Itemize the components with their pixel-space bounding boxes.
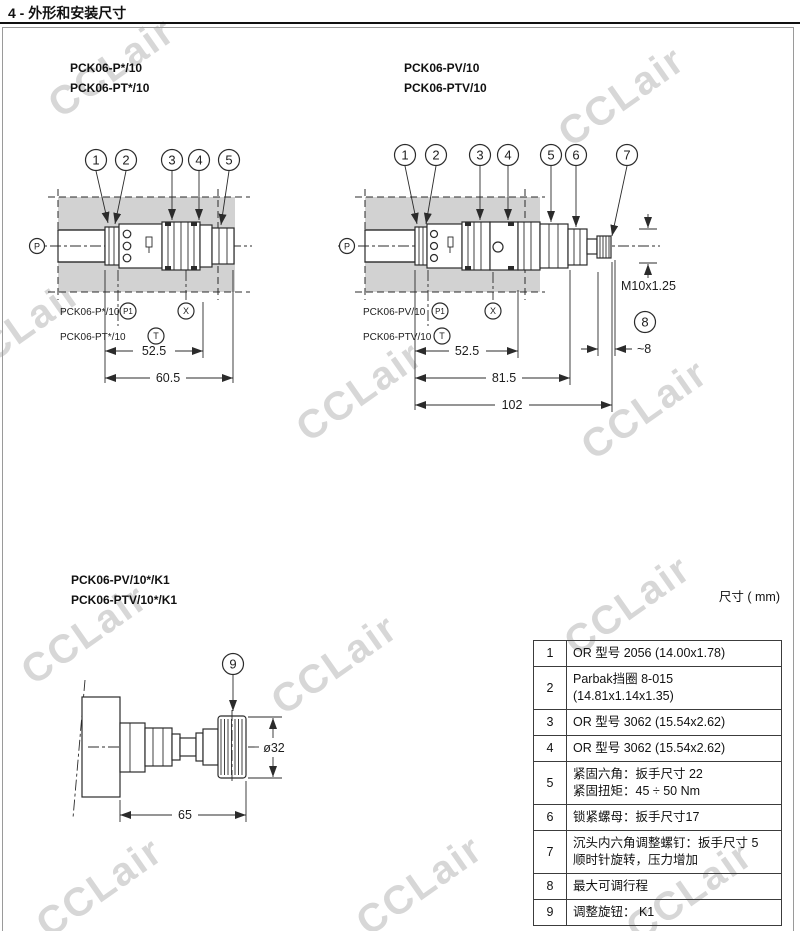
item-number: 1 bbox=[534, 641, 567, 667]
port-p-label: P bbox=[344, 242, 350, 252]
callout-2: 2 bbox=[432, 148, 439, 163]
callout-5: 5 bbox=[225, 153, 232, 168]
table-row: 4OR 型号 3062 (15.54x2.62) bbox=[534, 736, 782, 762]
callout-6: 6 bbox=[572, 148, 579, 163]
item-number: 4 bbox=[534, 736, 567, 762]
dim-52-5: 52.5 bbox=[455, 344, 479, 358]
port-x-label: X bbox=[183, 306, 189, 316]
item-description: OR 型号 3062 (15.54x2.62) bbox=[567, 736, 782, 762]
callout-9-group: 9 bbox=[223, 654, 244, 712]
variant-p-label: PCK06-P*/10 bbox=[60, 307, 120, 318]
lock-nut bbox=[568, 229, 587, 265]
port-p-label: P bbox=[34, 242, 40, 252]
item-number: 2 bbox=[534, 667, 567, 710]
dim-81-5: 81.5 bbox=[492, 371, 516, 385]
item-description: 锁紧螺母：扳手尺寸17 bbox=[567, 805, 782, 831]
cartridge-valve bbox=[415, 222, 611, 270]
dimension-dia32: ø32 bbox=[248, 717, 285, 778]
drawing-pck06-k1: 9 ø32 65 bbox=[73, 654, 285, 823]
drawing-pck06-pv: P bbox=[338, 145, 676, 413]
hex-nut bbox=[212, 228, 234, 264]
port-t-label: T bbox=[153, 331, 159, 341]
item-number: 9 bbox=[534, 900, 567, 926]
dim-60-5: 60.5 bbox=[156, 371, 180, 385]
item-description: OR 型号 2056 (14.00x1.78) bbox=[567, 641, 782, 667]
callout-8-group: 8 bbox=[635, 312, 656, 333]
callout-3: 3 bbox=[168, 153, 175, 168]
dim-dia32: ø32 bbox=[263, 741, 285, 755]
item-description: 紧固六角：扳手尺寸 22紧固扭矩：45 ÷ 50 Nm bbox=[567, 762, 782, 805]
callout-1: 1 bbox=[401, 148, 408, 163]
parts-table-body: 1OR 型号 2056 (14.00x1.78)2Parbak挡圈 8-015 … bbox=[534, 641, 782, 926]
callout-8: 8 bbox=[641, 315, 648, 330]
dim-65: 65 bbox=[178, 808, 192, 822]
callout-2: 2 bbox=[122, 153, 129, 168]
table-row: 5紧固六角：扳手尺寸 22紧固扭矩：45 ÷ 50 Nm bbox=[534, 762, 782, 805]
cartridge-valve bbox=[105, 222, 234, 270]
dimension-stroke: ~8 bbox=[581, 260, 651, 356]
dim-102: 102 bbox=[502, 398, 523, 412]
callout-4: 4 bbox=[195, 153, 202, 168]
table-row: 1OR 型号 2056 (14.00x1.78) bbox=[534, 641, 782, 667]
valve-with-knob bbox=[120, 710, 246, 784]
table-row: 3OR 型号 3062 (15.54x2.62) bbox=[534, 710, 782, 736]
callout-5: 5 bbox=[547, 148, 554, 163]
callout-1: 1 bbox=[92, 153, 99, 168]
section-header: 4 - 外形和安装尺寸 bbox=[0, 0, 800, 24]
table-row: 6锁紧螺母：扳手尺寸17 bbox=[534, 805, 782, 831]
thread-callout: M10x1.25 bbox=[621, 214, 676, 293]
variant-pv-label: PCK06-PV/10 bbox=[363, 307, 426, 318]
drawing-pck06-p: P bbox=[30, 150, 253, 386]
callout-7: 7 bbox=[623, 148, 630, 163]
datasheet-page: CCLair CCLair CCLair CCLair CCLair CCLai… bbox=[0, 0, 800, 931]
item-number: 7 bbox=[534, 831, 567, 874]
item-description: OR 型号 3062 (15.54x2.62) bbox=[567, 710, 782, 736]
item-number: 5 bbox=[534, 762, 567, 805]
thread-label: M10x1.25 bbox=[621, 279, 676, 293]
table-row: 7沉头内六角调整螺钉：扳手尺寸 5顺时针旋转，压力增加 bbox=[534, 831, 782, 874]
port-x-label: X bbox=[490, 306, 496, 316]
port-p: P bbox=[30, 239, 45, 254]
table-row: 8最大可调行程 bbox=[534, 874, 782, 900]
callout-3: 3 bbox=[476, 148, 483, 163]
item-number: 6 bbox=[534, 805, 567, 831]
callout-4: 4 bbox=[504, 148, 511, 163]
section-title: 4 - 外形和安装尺寸 bbox=[8, 3, 126, 23]
item-number: 8 bbox=[534, 874, 567, 900]
item-description: Parbak挡圈 8-015 (14.81x1.14x1.35) bbox=[567, 667, 782, 710]
variant-pt-label: PCK06-PT*/10 bbox=[60, 332, 126, 343]
table-row: 9调整旋钮： K1 bbox=[534, 900, 782, 926]
variant-ptv-label: PCK06-PTV/10 bbox=[363, 332, 432, 343]
dim-stroke: ~8 bbox=[637, 342, 651, 356]
port-t-label: T bbox=[439, 331, 445, 341]
callout-9: 9 bbox=[229, 657, 236, 672]
table-row: 2Parbak挡圈 8-015 (14.81x1.14x1.35) bbox=[534, 667, 782, 710]
port-p1-label: P1 bbox=[435, 307, 445, 316]
dimension-65: 65 bbox=[120, 781, 246, 822]
port-p1-label: P1 bbox=[123, 307, 133, 316]
parts-table: 1OR 型号 2056 (14.00x1.78)2Parbak挡圈 8-015 … bbox=[533, 640, 782, 926]
item-description: 沉头内六角调整螺钉：扳手尺寸 5顺时针旋转，压力增加 bbox=[567, 831, 782, 874]
item-number: 3 bbox=[534, 710, 567, 736]
item-description: 最大可调行程 bbox=[567, 874, 782, 900]
tightening-hex bbox=[540, 224, 568, 268]
dim-52-5: 52.5 bbox=[142, 344, 166, 358]
port-p: P bbox=[340, 239, 355, 254]
item-description: 调整旋钮： K1 bbox=[567, 900, 782, 926]
